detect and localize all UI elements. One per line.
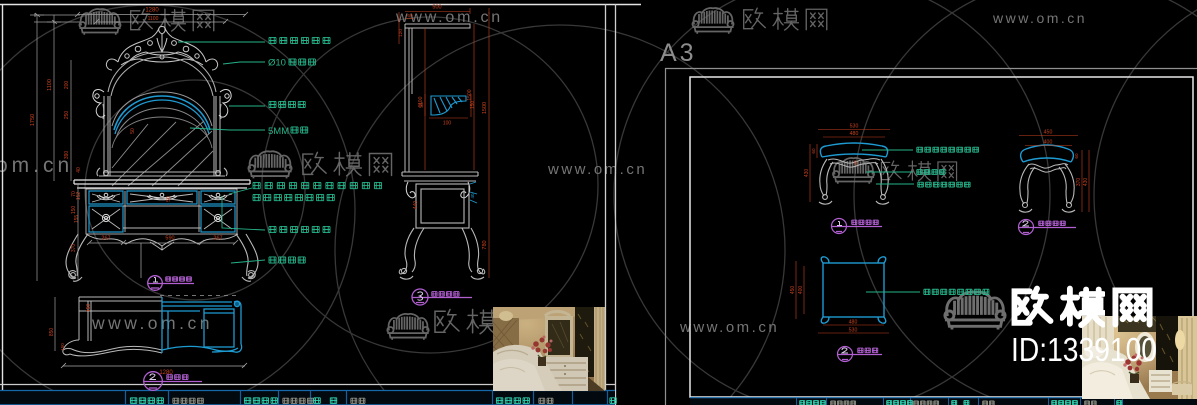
svg-text:780: 780 <box>482 240 488 249</box>
svg-text:40: 40 <box>470 193 475 199</box>
svg-text:1100: 1100 <box>148 16 159 22</box>
svg-text:1280: 1280 <box>145 8 159 14</box>
svg-text:70: 70 <box>71 191 77 197</box>
svg-text:50: 50 <box>130 128 136 134</box>
svg-text:A3: A3 <box>660 39 697 67</box>
svg-text:400: 400 <box>1044 140 1053 146</box>
svg-text:250: 250 <box>64 111 70 120</box>
svg-text:1500: 1500 <box>482 102 488 114</box>
svg-text:480: 480 <box>849 320 858 326</box>
svg-text:150: 150 <box>60 343 65 351</box>
svg-text:450: 450 <box>790 286 796 295</box>
svg-text:530: 530 <box>849 328 858 334</box>
svg-text:150: 150 <box>86 304 92 313</box>
svg-text:1100: 1100 <box>47 79 53 91</box>
svg-text:1750: 1750 <box>30 114 36 126</box>
svg-text:om.cn: om.cn <box>0 154 73 177</box>
svg-text:5MM: 5MM <box>268 126 289 137</box>
svg-text:50: 50 <box>166 196 172 202</box>
svg-text:40: 40 <box>76 167 82 173</box>
svg-text:www.om.cn: www.om.cn <box>679 319 779 336</box>
svg-text:60: 60 <box>1074 153 1079 159</box>
svg-text:1500: 1500 <box>467 89 473 100</box>
svg-text:155: 155 <box>74 215 80 224</box>
svg-text:430: 430 <box>804 169 810 178</box>
svg-text:500: 500 <box>432 5 441 11</box>
svg-text:Ø10: Ø10 <box>268 58 286 69</box>
svg-text:267: 267 <box>213 236 222 242</box>
svg-text:60: 60 <box>811 148 816 154</box>
svg-text:370: 370 <box>71 244 77 253</box>
svg-text:390: 390 <box>64 151 70 160</box>
svg-text:ID:1339100: ID:1339100 <box>1011 331 1157 368</box>
svg-text:400: 400 <box>798 286 804 295</box>
svg-text:267: 267 <box>101 236 110 242</box>
svg-text:590: 590 <box>165 236 174 242</box>
svg-text:150: 150 <box>470 101 476 110</box>
svg-text:530: 530 <box>850 124 859 130</box>
svg-text:450: 450 <box>1044 130 1053 136</box>
svg-text:850: 850 <box>49 328 55 337</box>
svg-text:440: 440 <box>413 201 419 210</box>
svg-text:40: 40 <box>853 160 858 166</box>
svg-text:www.om.cn: www.om.cn <box>992 10 1087 26</box>
svg-text:370: 370 <box>1076 178 1082 187</box>
svg-text:150: 150 <box>71 206 77 215</box>
svg-text:100: 100 <box>443 121 452 127</box>
svg-text:60: 60 <box>407 13 413 19</box>
svg-text:1100: 1100 <box>418 96 424 107</box>
svg-text:www.om.cn: www.om.cn <box>91 313 213 333</box>
svg-text:200: 200 <box>64 81 70 90</box>
svg-text:120: 120 <box>398 29 404 37</box>
svg-text:www.om.cn: www.om.cn <box>547 161 647 178</box>
svg-text:480: 480 <box>850 131 859 137</box>
svg-text:430: 430 <box>1083 178 1089 187</box>
